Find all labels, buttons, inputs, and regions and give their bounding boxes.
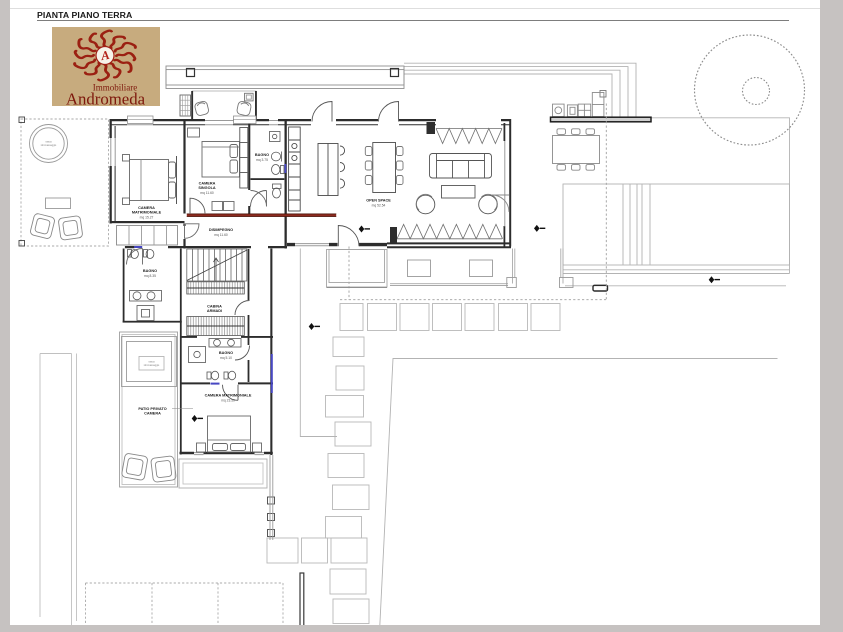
svg-text:MATRIMONIALE: MATRIMONIALE (132, 211, 162, 215)
svg-text:CAMERA MATRIMONIALE: CAMERA MATRIMONIALE (205, 394, 252, 398)
svg-text:ARMADI: ARMADI (207, 309, 222, 313)
svg-text:mq 8.35: mq 8.35 (144, 274, 156, 278)
svg-text:OPEN SPACE: OPEN SPACE (366, 199, 391, 203)
svg-text:CAMERA: CAMERA (144, 412, 161, 416)
svg-text:BAGNO: BAGNO (255, 153, 269, 157)
svg-text:PATIO PRIVATO: PATIO PRIVATO (138, 407, 166, 411)
svg-text:mq 5.10: mq 5.10 (220, 356, 232, 360)
svg-text:mq 11.60: mq 11.60 (214, 233, 228, 237)
svg-text:mq 23.50: mq 23.50 (221, 398, 235, 402)
svg-text:CAMERA: CAMERA (138, 206, 155, 210)
svg-text:idromassaggio: idromassaggio (144, 364, 160, 367)
svg-text:mq 52.54: mq 52.54 (372, 203, 386, 207)
svg-text:BAGNO: BAGNO (219, 351, 233, 355)
svg-text:mq 3.75: mq 3.75 (256, 158, 268, 162)
svg-text:mq 11.60: mq 11.60 (200, 191, 214, 195)
svg-text:SINGOLA: SINGOLA (198, 186, 216, 190)
svg-text:CAMERA: CAMERA (199, 182, 216, 186)
svg-text:mq 15.27: mq 15.27 (140, 216, 154, 220)
svg-text:BAGNO: BAGNO (143, 269, 157, 273)
svg-text:idromassaggio: idromassaggio (41, 144, 57, 147)
svg-text:DISIMPEGNO: DISIMPEGNO (209, 228, 233, 232)
svg-text:Andromeda: Andromeda (66, 90, 146, 107)
svg-text:CABINA: CABINA (207, 305, 222, 309)
